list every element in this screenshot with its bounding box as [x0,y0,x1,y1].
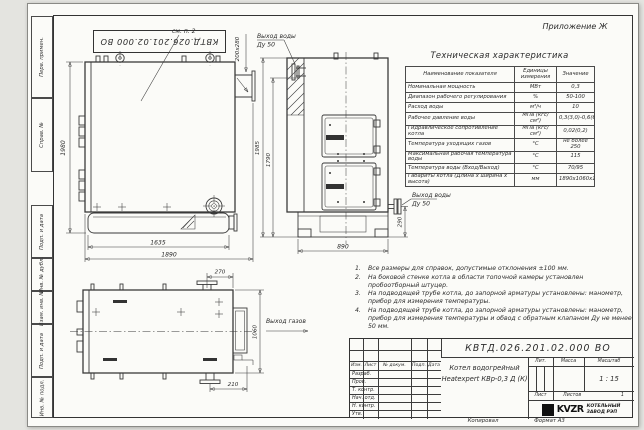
flue-hatch [287,58,304,115]
copy-label: Копировал [455,418,511,424]
title-block: Изм. Лист № докум. Подп. Дата Разраб. Пр… [349,338,633,418]
company-name: КОТЕЛЬНЫЙ ЗАВОД РЭП [587,404,621,415]
door-handle-lower [326,184,344,189]
sheets-value: 1 [621,391,624,400]
role-tkontr: Т. контр. [351,386,379,394]
dim-flange-270: 270 [215,270,226,276]
dim-base-1635: 1635 [150,240,166,247]
role-nachotd: Нач. отд. [351,394,379,402]
sheets-cell: Листов 1 [553,391,634,400]
kvzr-logo-icon [542,404,554,416]
sheets-label: Листов [563,391,581,400]
door-handle-upper [326,135,344,140]
col-header-izm: Изм. [350,361,363,370]
col-header-list: Лист [363,361,378,370]
scale-value: 1 : 15 [584,366,634,391]
kvzr-logo-text: KVZR [557,404,584,415]
product-name-line2: Heatexpert КВр-0,3 Д (К) [441,374,528,385]
lit-label: Лит. [528,358,553,366]
dim-height-1985: 1985 [255,140,261,155]
front-view: 200х280 см. п. 2 1980 [60,28,255,262]
sheet-label: Лист [528,391,553,400]
company-cell: KVZR КОТЕЛЬНЫЙ ЗАВОД РЭП [528,400,634,419]
product-name-cell: Котел водогрейный Heatexpert КВр-0,3 Д (… [441,358,528,419]
company-name-line2: ЗАВОД РЭП [587,410,621,415]
dim-width-890: 890 [337,244,349,251]
note-ref-label: см. п. 2 [172,28,196,35]
anchor-marks [93,203,171,211]
dim-length-1890: 1890 [161,252,177,259]
mass-label: Масса [553,358,584,366]
role-utv: Утв. [351,410,379,418]
format-label: Формат А3 [527,418,572,424]
scale-label: Масштаб [584,358,634,366]
anchor-marks [92,298,223,318]
dim-outlet-210: 210 [228,382,239,388]
top-view: 270 210 1060 Выход газов [70,270,308,393]
col-header-podp: Подп. [411,361,427,370]
water-outlet-top-label: Выход воды [257,33,296,40]
drawing-page: Перв. примен. Справ. № Подп. и дата Инв.… [0,0,644,430]
role-nkontr: Н. контр. [351,402,379,410]
dim-height-1790: 1790 [266,152,272,167]
dim-flue-size: 200х280 [235,36,241,61]
dim-nozzle-290: 290 [398,216,404,227]
col-header-docnum: № докум. [378,361,411,370]
title-block-doc-number: КВТД.026.201.02.000 ВО [441,339,634,358]
water-outlet-side-label2: Ду 50 [411,201,430,208]
dim-width-1060: 1060 [253,324,259,339]
role-prov: Пров. [351,378,379,386]
dim-height-1980: 1980 [60,140,67,156]
role-razrab: Разраб. [351,370,379,378]
side-view: Выход воды Ду 50 Выход воды Ду 50 290 89… [255,33,451,254]
col-header-data: Дата [427,361,441,370]
water-outlet-top-label2: Ду 50 [256,42,275,49]
water-outlet-side-label: Выход воды [412,192,451,199]
gas-outlet-label: Выход газов [266,318,306,325]
product-name-line1: Котел водогрейный [441,363,528,374]
